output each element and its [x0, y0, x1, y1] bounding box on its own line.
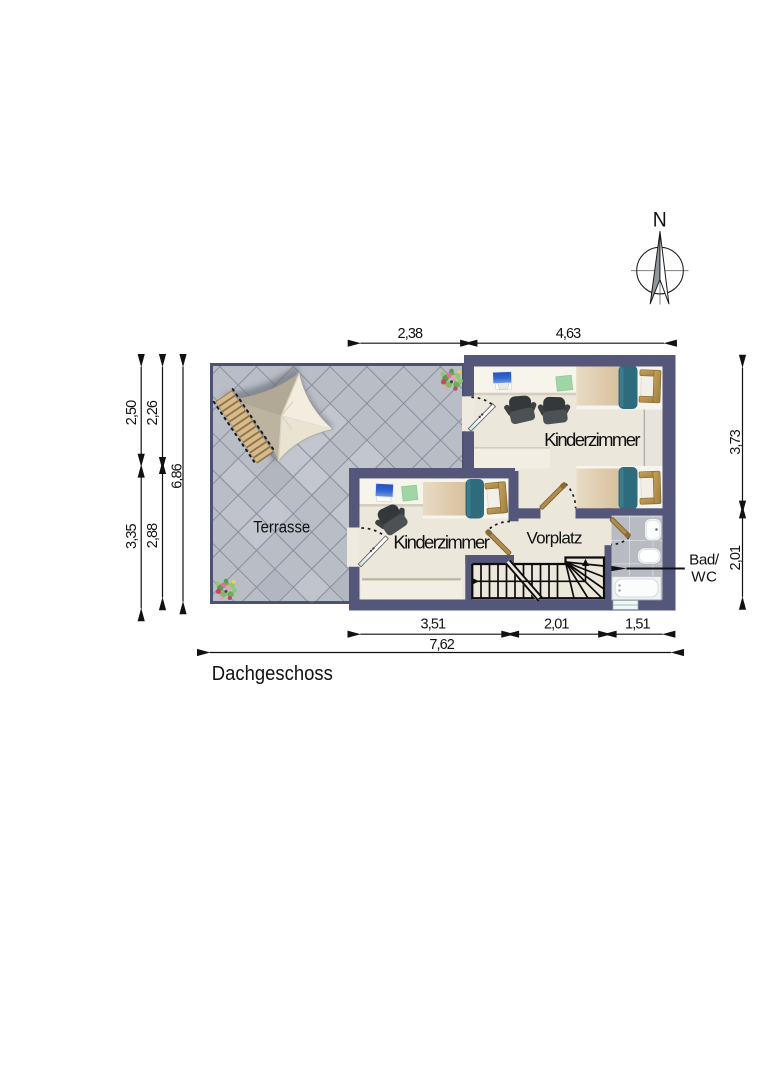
svg-text:2,26: 2,26 [145, 400, 161, 426]
svg-text:Terrasse: Terrasse [253, 517, 310, 536]
svg-text:7,62: 7,62 [429, 637, 455, 653]
svg-text:2,50: 2,50 [124, 400, 140, 426]
svg-text:6,86: 6,86 [170, 463, 186, 489]
svg-text:3,51: 3,51 [421, 616, 447, 632]
svg-text:Vorplatz: Vorplatz [527, 529, 583, 548]
svg-text:1,51: 1,51 [625, 616, 651, 632]
svg-text:Bad/: Bad/ [689, 552, 720, 569]
svg-text:WC: WC [691, 569, 717, 586]
svg-text:Kinderzimmer: Kinderzimmer [393, 531, 490, 552]
svg-text:3,35: 3,35 [124, 523, 140, 549]
svg-text:N: N [653, 207, 667, 231]
svg-text:2,38: 2,38 [398, 326, 424, 342]
svg-text:Kinderzimmer: Kinderzimmer [544, 429, 641, 450]
svg-text:2,01: 2,01 [728, 545, 744, 571]
svg-text:2,88: 2,88 [145, 523, 161, 549]
svg-text:Dachgeschoss: Dachgeschoss [212, 663, 333, 685]
svg-text:2,01: 2,01 [544, 616, 570, 632]
svg-text:4,63: 4,63 [556, 326, 582, 342]
svg-text:3,73: 3,73 [728, 429, 744, 455]
